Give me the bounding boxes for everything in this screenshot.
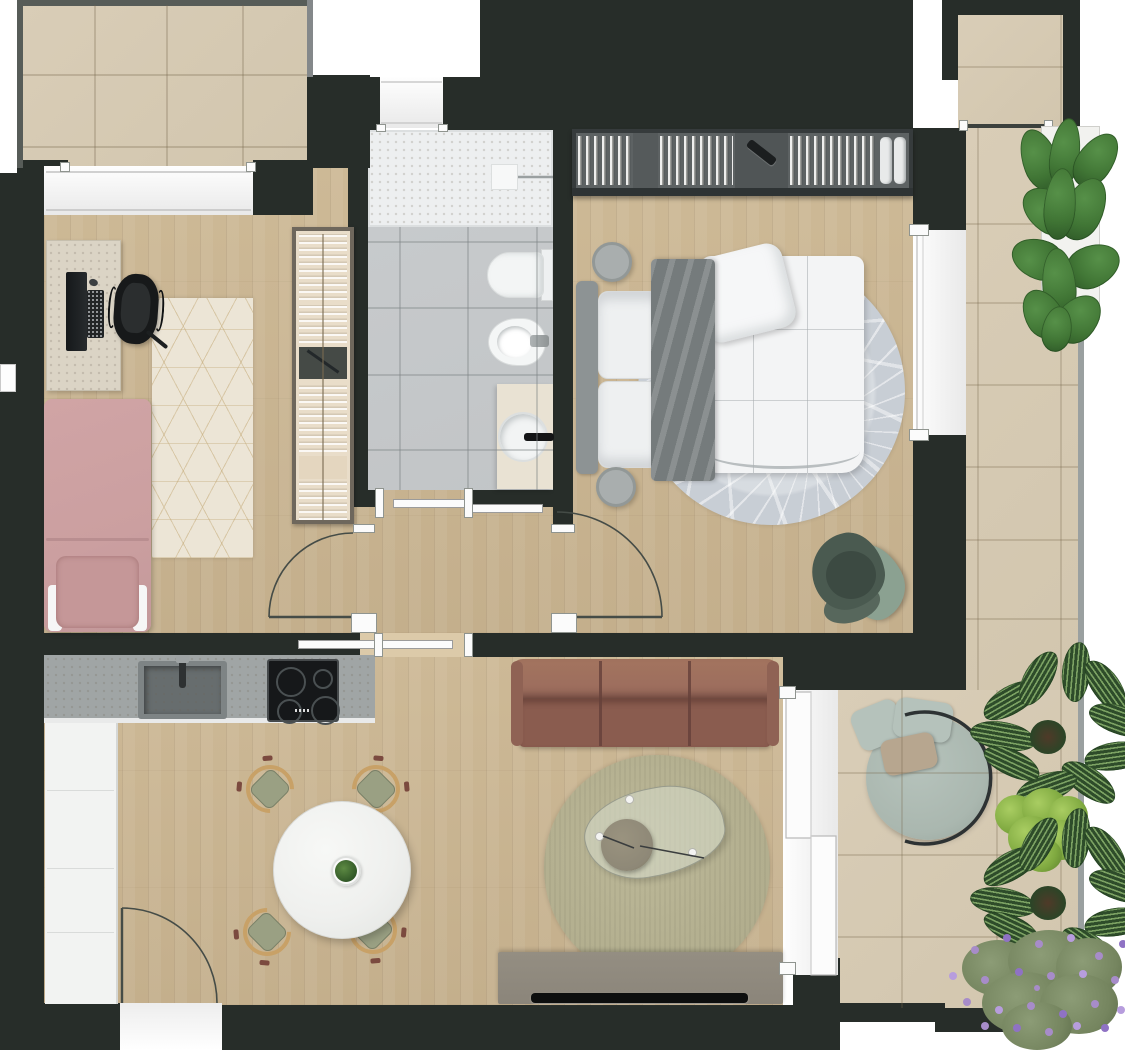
cabinet-seam	[47, 932, 114, 933]
bed-duvet-foot-fold	[705, 434, 860, 469]
sofa-seats	[519, 699, 771, 747]
sofa-armrest	[511, 661, 523, 746]
door-jamb	[374, 633, 383, 657]
wall-top-exterior	[480, 0, 913, 130]
door-jamb	[353, 524, 375, 533]
office-rug	[152, 298, 253, 558]
window-jamb	[376, 124, 386, 132]
wardrobe-panel	[633, 133, 658, 188]
coffee-table-tray	[601, 819, 653, 871]
sofa	[511, 659, 779, 748]
kitchen-faucet-base	[176, 655, 189, 663]
wall-balcony-top-band	[942, 0, 1080, 15]
window-jamb	[909, 224, 929, 236]
sofa-armrest	[767, 661, 779, 746]
dining-chair-leg	[236, 781, 242, 791]
dining-chair-leg	[373, 755, 383, 761]
wall	[942, 15, 958, 80]
bed-pillow-stack	[598, 381, 659, 468]
laptop-keyboard	[87, 290, 104, 338]
calathea-center	[1030, 886, 1066, 920]
door-jamb	[464, 633, 473, 657]
wardrobe-hanging-clothes	[790, 136, 876, 185]
office-chair	[109, 270, 162, 349]
terrace-railing-left	[17, 0, 23, 168]
shower-tray	[368, 130, 553, 227]
cabinet-seam	[47, 790, 114, 791]
wardrobe-panel	[735, 133, 788, 188]
dining-chair-leg	[262, 755, 272, 761]
lavender-flowers	[1034, 985, 1040, 991]
wall	[253, 160, 313, 215]
dining-chair-leg	[370, 958, 380, 964]
wall	[313, 77, 380, 130]
calathea-center	[1030, 720, 1066, 754]
foot-stool	[596, 467, 636, 507]
door-jamb	[464, 488, 473, 518]
sofa-cushion-gap	[599, 661, 602, 746]
induction-hob	[267, 659, 339, 722]
wardrobe-bottom-lip	[572, 188, 913, 196]
shelf-divider	[322, 234, 324, 520]
toilet	[487, 252, 544, 298]
door-jamb	[551, 524, 575, 533]
hob-ring	[311, 696, 340, 725]
bidet-basin	[497, 326, 533, 358]
wall-bedroom-east-lower	[913, 435, 966, 690]
entrance-doorway	[120, 1003, 222, 1050]
bed-pillow	[56, 556, 139, 628]
bed-fold-seam	[46, 538, 149, 541]
living-sliding-door-opening	[783, 690, 838, 975]
ficus-plant	[995, 105, 1125, 340]
bedside-stool	[592, 242, 632, 282]
bedroom-wardrobe	[572, 129, 913, 196]
dining-chair-leg	[401, 927, 407, 937]
window-jamb	[909, 429, 929, 441]
wardrobe-towel	[880, 137, 892, 184]
tv	[531, 993, 748, 1003]
bidet-faucet	[530, 335, 549, 347]
bedroom-balcony-window	[913, 230, 966, 435]
window-jamb	[779, 686, 796, 699]
bed-throw-blanket	[651, 259, 715, 481]
office-shelf-unit	[292, 227, 354, 524]
laptop-screen	[66, 272, 87, 351]
sofa-back	[511, 659, 779, 701]
window-jamb	[246, 162, 256, 172]
window-jamb	[779, 962, 796, 975]
railing-post	[959, 120, 968, 131]
wall	[830, 1003, 945, 1022]
hob-ring	[276, 667, 306, 697]
lavender-foliage	[1002, 1002, 1072, 1050]
wall	[44, 1003, 120, 1050]
coffee-table-foot	[625, 795, 634, 804]
floor-plan-canvas	[0, 0, 1125, 1059]
door-jamb	[551, 613, 577, 633]
dining-chair-leg	[233, 929, 239, 939]
coffee-table-foot	[688, 848, 697, 857]
window-jamb	[438, 124, 448, 132]
wall-bathroom-east	[553, 128, 573, 532]
wall-bedroom-east-upper	[913, 128, 966, 230]
left-wall-window-notch	[0, 364, 16, 392]
bathroom-sliding-door-panel	[467, 504, 543, 513]
window-jamb	[60, 162, 70, 172]
door-jamb	[351, 613, 377, 633]
coffee-table-foot	[595, 832, 604, 841]
terrace-top-left-floor	[23, 5, 307, 166]
wardrobe-hanging-clothes	[578, 136, 631, 185]
wall-mid-right	[472, 633, 917, 657]
bed-pillow-stack	[598, 291, 659, 379]
wardrobe-towel	[894, 137, 906, 184]
bathroom-sliding-door-track	[393, 499, 470, 508]
terrace-railing-top	[22, 0, 307, 6]
office-window	[44, 166, 253, 215]
cabinet-seam	[47, 868, 114, 869]
table-plant	[335, 860, 357, 882]
sofa-cushion-gap	[688, 661, 691, 746]
wall-living-northeast	[783, 657, 966, 690]
wall-bottom-exterior	[222, 1005, 840, 1050]
wall-left-exterior	[0, 173, 44, 1050]
shower-window	[380, 77, 443, 128]
tall-cabinet-column	[45, 723, 118, 1004]
single-bed	[44, 399, 151, 632]
dining-chair-leg	[404, 781, 410, 791]
dining-chair-leg	[259, 960, 269, 966]
hob-ring	[313, 669, 333, 689]
door-jamb	[375, 488, 384, 518]
hob-controls	[295, 709, 311, 712]
vanity-faucet	[524, 433, 554, 441]
lounge-chair-cushion	[826, 551, 876, 599]
shower-head-box	[491, 164, 518, 190]
terrace-railing-right	[307, 0, 313, 77]
wardrobe-hanging-clothes	[660, 136, 733, 185]
bed-headboard	[576, 281, 598, 474]
wall	[443, 77, 480, 130]
